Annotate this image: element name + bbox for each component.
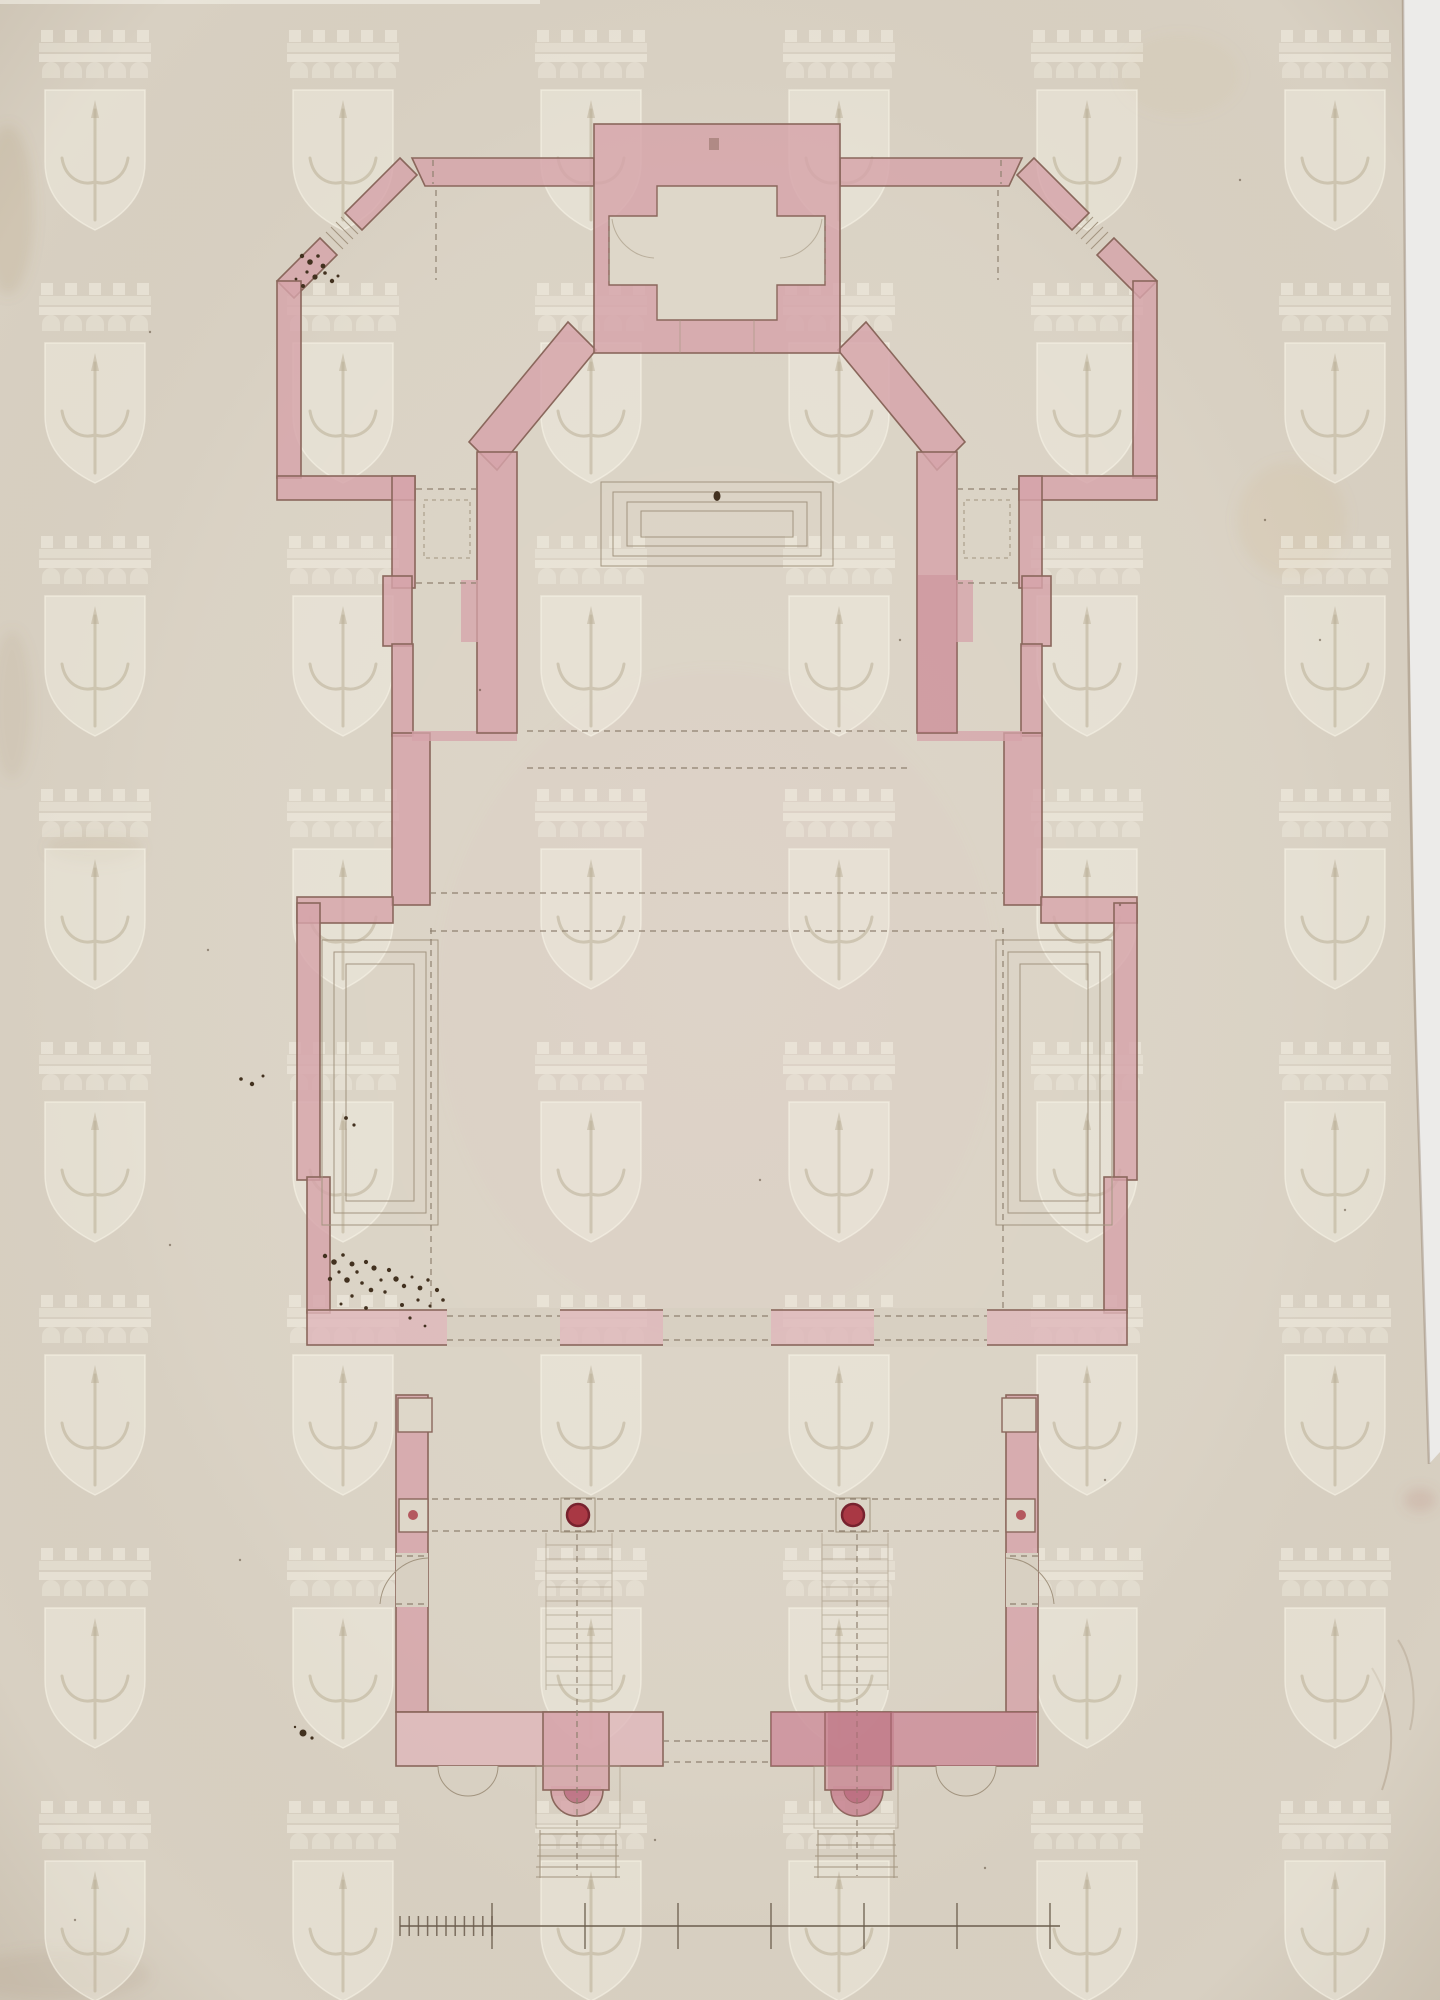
- nave-outer-wall-upper: [392, 644, 413, 736]
- ink-dot: [350, 1294, 353, 1297]
- ink-dot: [239, 1077, 243, 1081]
- ink-dot: [340, 1303, 343, 1306]
- scanned-sheet: [0, 0, 1440, 2000]
- ink-dot: [294, 1726, 296, 1728]
- ink-dot: [312, 274, 317, 279]
- paper-speck: [899, 639, 901, 641]
- ink-dot: [310, 1736, 313, 1739]
- shield-with-fleur-staff-under-castle-crown-icon: [783, 1801, 895, 2000]
- ink-dot: [323, 271, 327, 275]
- ink-dot: [330, 279, 334, 283]
- wall-dark-overlay: [917, 575, 957, 733]
- paper-speck: [74, 1919, 76, 1921]
- paper-speck: [1119, 904, 1121, 906]
- ink-dot: [383, 1290, 386, 1293]
- ink-dot: [337, 1270, 340, 1273]
- paper-speck: [1264, 519, 1266, 521]
- ink-dot: [321, 264, 326, 269]
- pier-dark-overlay: [828, 1712, 894, 1790]
- ink-dot: [328, 1277, 332, 1281]
- ink-dot: [416, 1298, 419, 1301]
- ink-dot: [402, 1284, 406, 1288]
- bay-outer-wall-lower: [307, 1177, 330, 1313]
- paper-speck: [1104, 1479, 1106, 1481]
- ink-dot: [400, 1303, 404, 1307]
- ink-dot: [316, 254, 320, 258]
- paper-speck: [759, 1179, 761, 1181]
- ink-dot: [369, 1288, 374, 1293]
- paper-top-edge-highlight: [0, 0, 540, 4]
- nave-inner-wall: [477, 452, 517, 733]
- red-column-right: [842, 1504, 864, 1526]
- shield-with-fleur-staff-under-castle-crown-icon: [1279, 1801, 1391, 2000]
- stairhall-outer-step: [383, 576, 412, 646]
- shield-with-fleur-staff-under-castle-crown-icon: [287, 1801, 399, 2000]
- ink-dot: [295, 278, 298, 281]
- paper-speck: [1239, 179, 1241, 181]
- paper-speck: [149, 331, 151, 333]
- ink-dot: [364, 1306, 368, 1310]
- nave-outer-wall: [392, 733, 430, 905]
- wall-half-column: [408, 1510, 418, 1520]
- ink-dot: [441, 1298, 445, 1302]
- pavilion-west-wall: [277, 281, 301, 478]
- north-corridor-wall: [412, 158, 594, 186]
- ink-dot: [364, 1260, 368, 1264]
- shield-with-fleur-staff-under-castle-crown-icon: [39, 1801, 151, 2000]
- red-column-left: [567, 1504, 589, 1526]
- ink-dot: [300, 1730, 307, 1737]
- ink-dot: [379, 1278, 382, 1281]
- ink-dot: [344, 1116, 348, 1120]
- facade-wall-left: [396, 1712, 663, 1766]
- ink-dot: [305, 270, 308, 273]
- ink-dot: [250, 1082, 254, 1086]
- nave-inner-wall-tab: [461, 580, 478, 642]
- ink-dot: [337, 275, 340, 278]
- ink-dot: [393, 1276, 398, 1281]
- ink-dot: [360, 1281, 364, 1285]
- ink-dot: [418, 1286, 423, 1291]
- paper-speck: [1344, 1209, 1346, 1211]
- ink-dot: [323, 1254, 327, 1258]
- bay-outer-wall: [297, 903, 320, 1180]
- facade-dark-overlay: [771, 1712, 1036, 1766]
- paper-speck: [239, 1559, 241, 1561]
- ink-dot: [435, 1288, 439, 1292]
- entrance-pier: [543, 1712, 609, 1790]
- ink-dot: [411, 1276, 414, 1279]
- ink-dot: [350, 1262, 355, 1267]
- shield-with-fleur-staff-under-castle-crown-icon: [1031, 1801, 1143, 2000]
- ink-dot: [331, 1259, 337, 1265]
- ink-dot: [344, 1277, 350, 1283]
- paper-speck: [984, 1867, 986, 1869]
- stairhall-outer-wall: [392, 476, 415, 588]
- ink-dot: [307, 259, 313, 265]
- ink-dot: [371, 1265, 376, 1270]
- paper-speck: [654, 1839, 656, 1841]
- shield-with-fleur-staff-under-castle-crown-icon: [535, 1801, 647, 2000]
- hall-door-gap-right: [874, 1308, 987, 1347]
- ink-dot: [301, 284, 305, 288]
- hall-door-gap-left: [447, 1308, 560, 1347]
- paper-speck: [207, 949, 209, 951]
- vestibule-corner-pier: [398, 1398, 432, 1432]
- apse-top-notch: [709, 138, 719, 150]
- ink-dot: [424, 1325, 427, 1328]
- ink-dot: [352, 1123, 355, 1126]
- ink-dot: [300, 254, 304, 258]
- ink-dot: [262, 1075, 265, 1078]
- ink-dot: [408, 1316, 411, 1319]
- ink-dot: [355, 1270, 358, 1273]
- bimah-center-mark: [714, 491, 721, 501]
- floor-plan-drawing: [0, 0, 1440, 2000]
- ink-dot: [341, 1253, 345, 1257]
- paper-speck: [1319, 639, 1321, 641]
- ink-dot: [426, 1278, 429, 1281]
- paper-speck: [169, 1244, 171, 1246]
- ink-dot: [387, 1268, 391, 1272]
- paper-speck: [479, 689, 481, 691]
- hall-door-gap-center: [663, 1308, 771, 1347]
- ink-dot: [429, 1305, 432, 1308]
